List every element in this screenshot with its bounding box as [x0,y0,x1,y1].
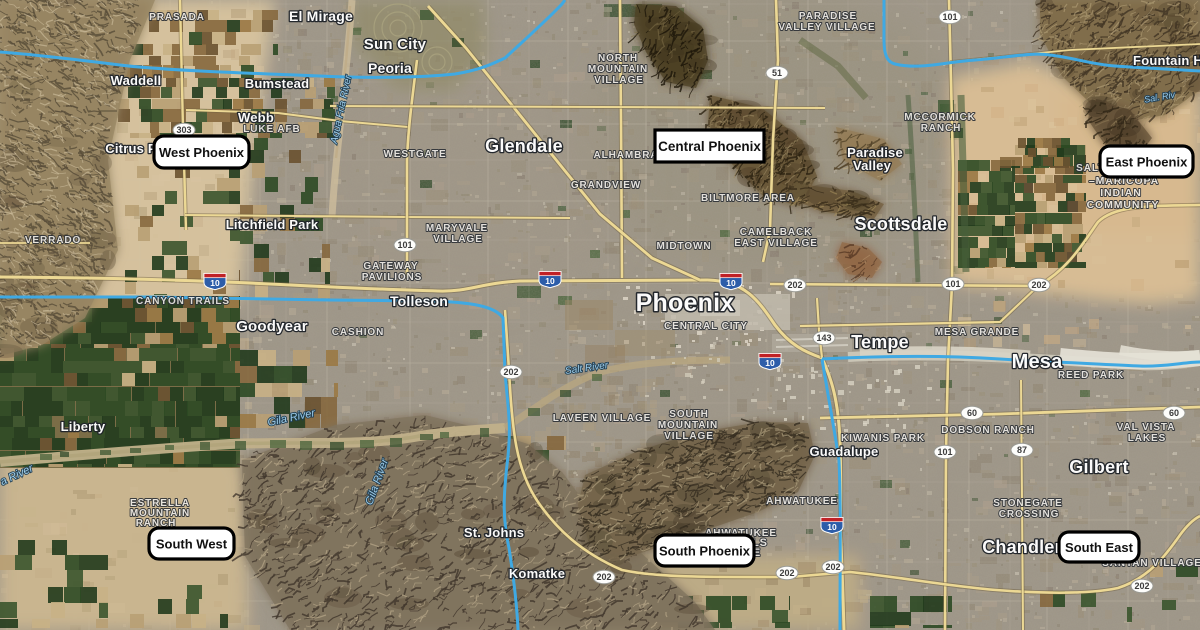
svg-text:VALLEY VILLAGE: VALLEY VILLAGE [778,22,875,33]
svg-text:WESTGATE: WESTGATE [383,149,446,160]
svg-text:51: 51 [772,68,782,78]
svg-text:Scottsdale: Scottsdale [854,214,947,234]
svg-text:KIWANIS PARK: KIWANIS PARK [841,433,925,444]
svg-text:10: 10 [545,276,555,286]
svg-text:SOUTH: SOUTH [669,409,709,420]
svg-text:VERRADO: VERRADO [25,235,81,246]
svg-text:Goodyear: Goodyear [236,318,308,335]
svg-text:CROSSING: CROSSING [999,509,1060,520]
svg-text:RANCH: RANCH [921,123,962,134]
svg-text:202: 202 [1031,280,1046,290]
svg-text:PRASADA: PRASADA [149,12,205,23]
svg-text:MCCORMICK: MCCORMICK [904,112,975,123]
svg-text:MOUNTAIN: MOUNTAIN [588,64,648,75]
svg-text:Komatke: Komatke [509,566,565,581]
svg-text:West Phoenix: West Phoenix [159,145,245,160]
svg-text:MARYVALE: MARYVALE [426,223,488,234]
svg-text:60: 60 [1169,408,1179,418]
svg-text:CAMELBACK: CAMELBACK [740,227,813,238]
svg-text:10: 10 [827,522,837,532]
svg-text:Fountain H: Fountain H [1133,53,1200,68]
svg-text:Guadalupe: Guadalupe [810,444,879,459]
svg-text:South Phoenix: South Phoenix [659,543,751,558]
svg-text:PAVILIONS: PAVILIONS [362,272,423,283]
svg-text:10: 10 [726,278,736,288]
svg-text:PARADISE: PARADISE [799,11,857,22]
svg-text:87: 87 [1017,445,1027,455]
svg-text:VILLAGE: VILLAGE [594,75,644,86]
svg-text:AHWATUKEE: AHWATUKEE [766,496,838,507]
svg-text:Mesa: Mesa [1012,351,1064,373]
svg-text:202: 202 [596,572,611,582]
svg-text:REED PARK: REED PARK [1058,370,1124,381]
svg-text:Chandler: Chandler [982,537,1062,557]
svg-text:VILLAGE: VILLAGE [433,234,483,245]
svg-text:101: 101 [942,12,957,22]
svg-text:Phoenix: Phoenix [636,289,735,317]
svg-text:ALHAMBRA: ALHAMBRA [594,150,659,161]
svg-text:GRANDVIEW: GRANDVIEW [571,180,641,191]
svg-text:NORTH: NORTH [598,53,638,64]
svg-text:Central Phoenix: Central Phoenix [658,139,761,154]
svg-text:STONEGATE: STONEGATE [993,498,1062,509]
svg-text:BILTMORE AREA: BILTMORE AREA [701,193,795,204]
svg-text:202: 202 [503,367,518,377]
svg-text:Tolleson: Tolleson [390,293,448,309]
svg-text:LAKES: LAKES [1128,433,1166,444]
svg-text:Valley: Valley [853,158,892,173]
svg-text:Tempe: Tempe [851,332,909,352]
svg-text:303: 303 [176,125,191,135]
svg-text:DOBSON RANCH: DOBSON RANCH [941,425,1035,436]
svg-text:Waddell: Waddell [111,73,162,88]
svg-text:VILLAGE: VILLAGE [664,431,714,442]
svg-text:LUKE AFB: LUKE AFB [243,124,300,135]
svg-text:South East: South East [1065,540,1134,555]
svg-text:Glendale: Glendale [485,136,563,156]
svg-text:Peoria: Peoria [368,60,412,76]
svg-text:202: 202 [779,568,794,578]
svg-text:COMMUNITY: COMMUNITY [1087,199,1160,211]
svg-text:202: 202 [825,562,840,572]
svg-text:CANYON TRAILS: CANYON TRAILS [136,296,230,307]
svg-text:10: 10 [765,358,775,368]
svg-text:VAL VISTA: VAL VISTA [1117,422,1176,433]
svg-text:202: 202 [1134,581,1149,591]
svg-text:Citrus P: Citrus P [105,141,157,156]
svg-text:GATEWAY: GATEWAY [363,261,418,272]
svg-text:INDIAN: INDIAN [1100,187,1142,199]
svg-text:EAST VILLAGE: EAST VILLAGE [734,238,818,249]
svg-text:LAVEEN VILLAGE: LAVEEN VILLAGE [553,413,652,424]
svg-text:101: 101 [937,447,952,457]
svg-text:Bumstead: Bumstead [245,76,309,91]
svg-text:CENTRAL CITY: CENTRAL CITY [664,321,748,332]
svg-text:MOUNTAIN: MOUNTAIN [658,420,718,431]
svg-text:143: 143 [816,333,831,343]
svg-text:East Phoenix: East Phoenix [1106,154,1188,169]
svg-text:Sun City: Sun City [364,36,427,53]
svg-text:Liberty: Liberty [61,419,106,434]
svg-text:60: 60 [967,408,977,418]
svg-text:101: 101 [945,279,960,289]
svg-text:Litchfield Park: Litchfield Park [226,217,319,232]
svg-text:El Mirage: El Mirage [289,8,353,24]
svg-text:South West: South West [156,536,228,551]
svg-text:CASHION: CASHION [332,327,384,338]
svg-text:Webb: Webb [238,110,274,125]
svg-text:Gilbert: Gilbert [1069,457,1128,477]
svg-text:MESA GRANDE: MESA GRANDE [935,327,1020,338]
svg-text:101: 101 [397,240,412,250]
svg-text:202: 202 [787,280,802,290]
svg-text:10: 10 [210,278,220,288]
svg-text:MIDTOWN: MIDTOWN [657,241,712,252]
svg-text:St. Johns: St. Johns [464,525,524,540]
